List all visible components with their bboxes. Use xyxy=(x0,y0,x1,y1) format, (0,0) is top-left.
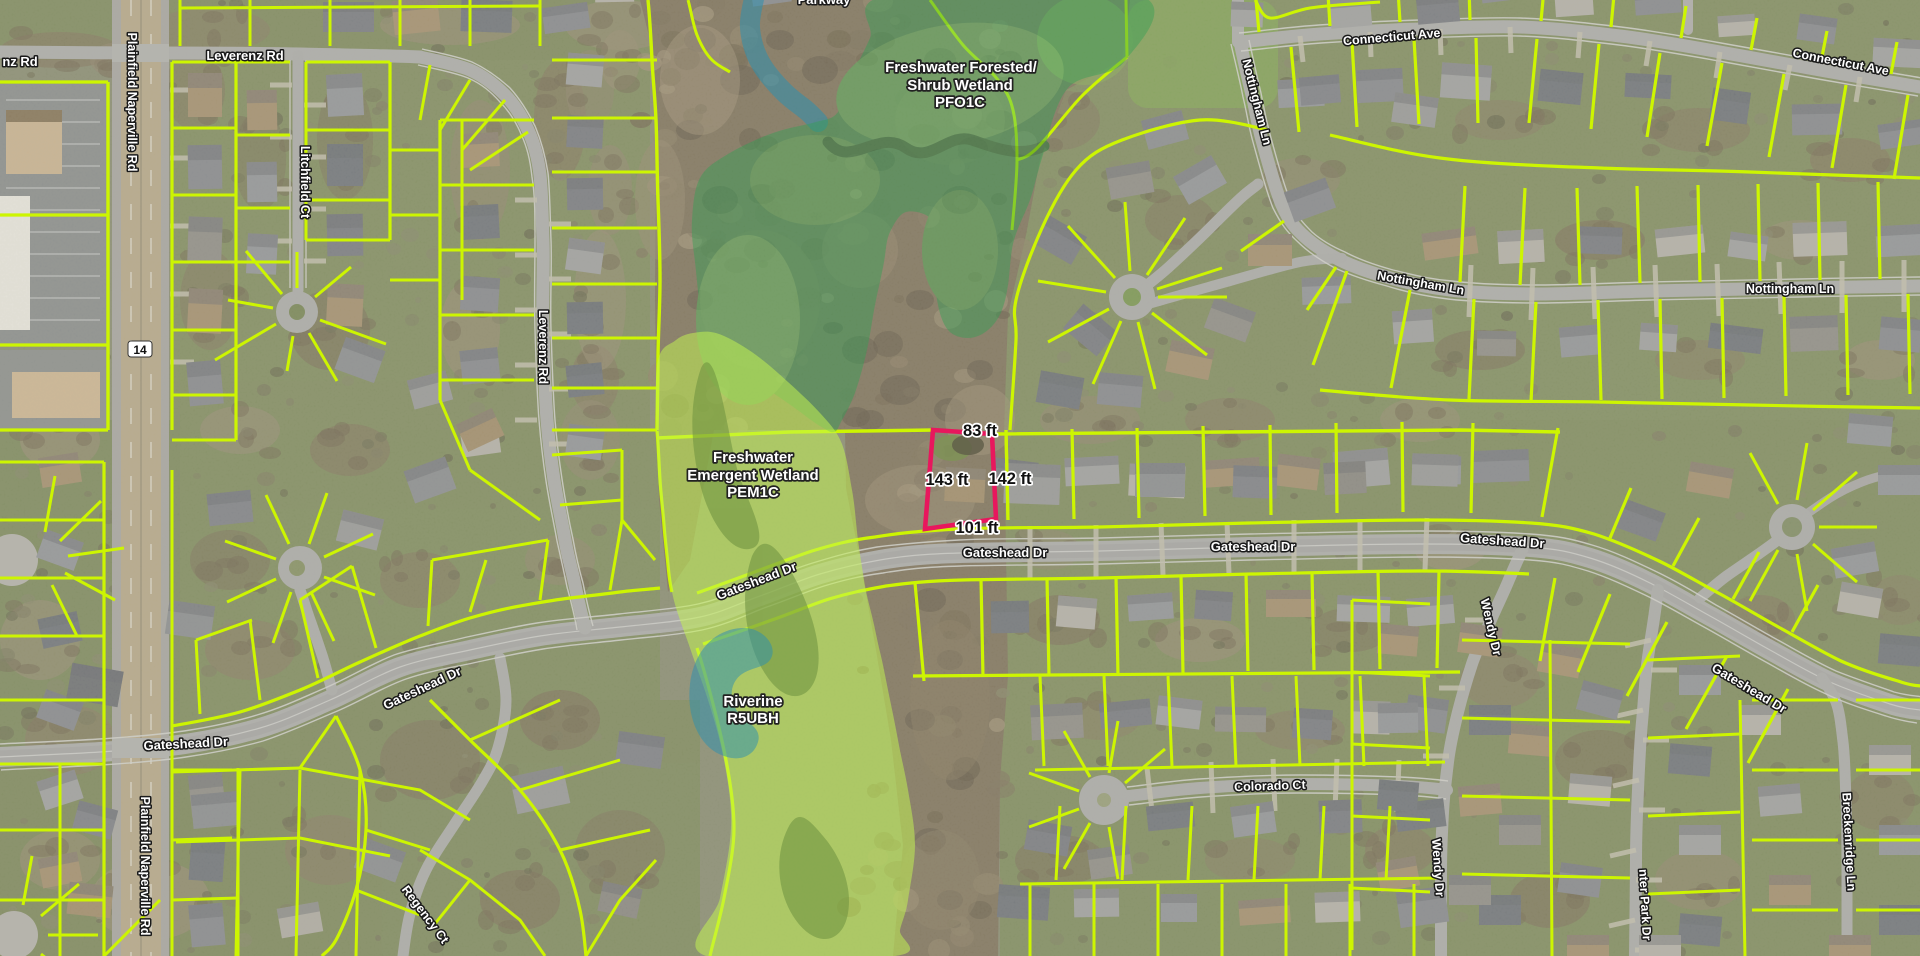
svg-text:83 ft: 83 ft xyxy=(963,422,997,440)
svg-text:R5UBH: R5UBH xyxy=(727,710,779,727)
svg-text:Plainfield Naperville Rd: Plainfield Naperville Rd xyxy=(138,797,152,936)
svg-text:101 ft: 101 ft xyxy=(955,519,999,537)
svg-text:Nottingham Ln: Nottingham Ln xyxy=(1746,282,1834,296)
svg-text:Gateshead Dr: Gateshead Dr xyxy=(1211,539,1296,554)
svg-text:Emergent Wetland: Emergent Wetland xyxy=(687,467,818,484)
svg-text:Freshwater: Freshwater xyxy=(713,449,793,466)
svg-text:Shrub Wetland: Shrub Wetland xyxy=(907,77,1013,94)
svg-text:Gateshead Dr: Gateshead Dr xyxy=(963,545,1048,560)
svg-text:Leverenz Rd: Leverenz Rd xyxy=(536,310,550,384)
svg-text:nz Rd: nz Rd xyxy=(2,54,37,69)
svg-text:Parkway: Parkway xyxy=(798,0,852,7)
svg-text:Litchfield Ct: Litchfield Ct xyxy=(298,146,312,219)
svg-text:Riverine: Riverine xyxy=(723,693,782,710)
svg-text:14: 14 xyxy=(133,343,147,357)
svg-text:PEM1C: PEM1C xyxy=(727,484,779,501)
svg-text:142 ft: 142 ft xyxy=(988,470,1032,488)
svg-text:Leverenz Rd: Leverenz Rd xyxy=(206,48,283,63)
svg-text:Plainfield Naperville Rd: Plainfield Naperville Rd xyxy=(125,33,139,172)
svg-text:Colorado Ct: Colorado Ct xyxy=(1234,778,1307,795)
svg-text:143 ft: 143 ft xyxy=(925,471,969,489)
svg-text:PFO1C: PFO1C xyxy=(935,94,985,111)
svg-text:Freshwater Forested/: Freshwater Forested/ xyxy=(885,59,1038,76)
